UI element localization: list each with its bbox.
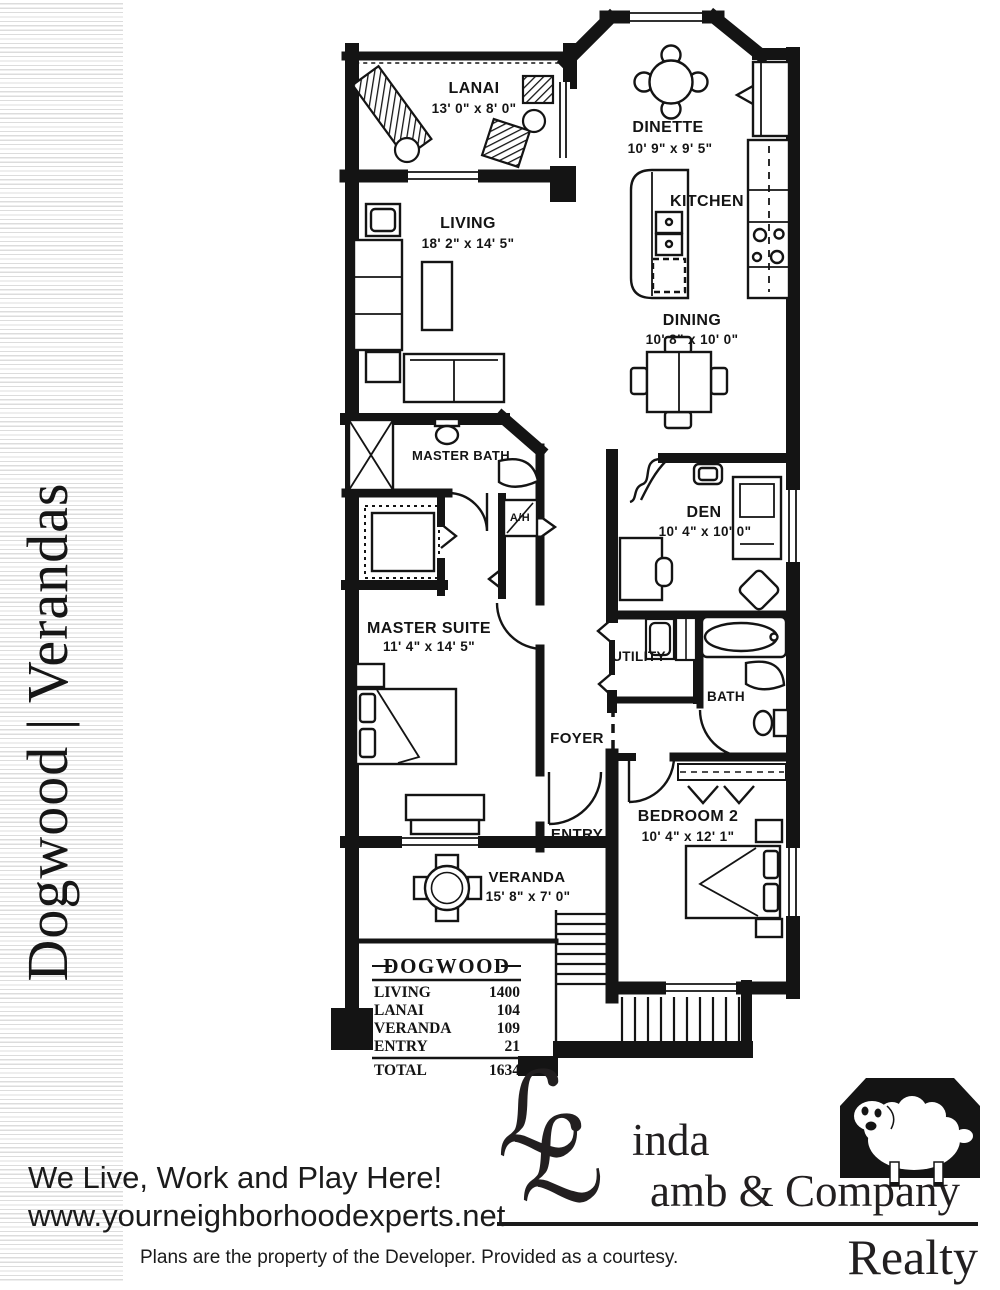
area-row-value: 1400: [489, 984, 520, 1001]
disclaimer: Plans are the property of the Developer.…: [140, 1247, 678, 1269]
area-row-label: LANAI: [374, 1002, 424, 1019]
dinette-table-icon: [635, 46, 708, 119]
label-bedroom2: BEDROOM 2: [638, 808, 739, 825]
logo-division: Realty: [760, 1228, 978, 1286]
dining-table-icon: [631, 337, 727, 428]
label-dining: DINING: [663, 312, 721, 329]
master-bed-icon: [356, 664, 484, 834]
area-row-label: VERANDA: [374, 1020, 452, 1037]
area-table-title: DOGWOOD: [383, 954, 510, 978]
logo-name-line1: inda: [632, 1114, 709, 1166]
label-master-suite: MASTER SUITE: [367, 620, 491, 637]
label-living: LIVING: [440, 215, 496, 232]
bath-fixtures-icon: [702, 617, 788, 736]
walkin-closet-icon: [365, 506, 439, 578]
label-living-dims: 18' 2" x 14' 5": [422, 236, 515, 251]
flyer-page: Dogwood | Verandas: [0, 0, 1000, 1290]
area-row-value: 104: [497, 1002, 521, 1019]
website-url: www.yourneighborhoodexperts.net: [28, 1198, 505, 1234]
label-entry: ENTRY: [551, 826, 603, 843]
living-furniture-icon: [354, 204, 504, 402]
label-air-handler: A/H: [510, 512, 530, 524]
label-master-suite-dims: 11' 4" x 14' 5": [383, 639, 475, 654]
stairs: [556, 910, 739, 1041]
logo-script-l2: ℒ: [520, 1101, 605, 1219]
label-bath: BATH: [707, 689, 745, 704]
label-bedroom2-dims: 10' 4" x 12' 1": [642, 829, 735, 844]
label-den: DEN: [687, 504, 722, 521]
label-dinette: DINETTE: [632, 119, 703, 136]
label-kitchen: KITCHEN: [670, 193, 744, 210]
label-veranda-dims: 15' 8" x 7' 0": [486, 889, 571, 904]
logo-divider-line: [497, 1222, 978, 1226]
label-lanai: LANAI: [449, 80, 500, 97]
area-total-label: TOTAL: [374, 1062, 427, 1079]
label-lanai-dims: 13' 0" x 8' 0": [432, 101, 517, 116]
area-row-label: LIVING: [374, 984, 431, 1001]
area-row-value: 109: [497, 1020, 521, 1037]
tagline: We Live, Work and Play Here!: [28, 1160, 442, 1196]
label-veranda: VERANDA: [489, 869, 566, 886]
label-dining-dims: 10' 8" x 10' 0": [646, 332, 739, 347]
label-den-dims: 10' 4" x 10' 0": [659, 524, 752, 539]
label-dinette-dims: 10' 9" x 9' 5": [628, 141, 713, 156]
label-master-bath: MASTER BATH: [412, 448, 510, 463]
bedroom2-bed-icon: [678, 764, 786, 937]
lamb-house-icon: [840, 1076, 980, 1192]
area-row-label: ENTRY: [374, 1038, 428, 1055]
label-utility: UTILITY: [612, 649, 666, 664]
veranda-table-icon: [414, 855, 481, 921]
label-foyer: FOYER: [550, 730, 604, 747]
